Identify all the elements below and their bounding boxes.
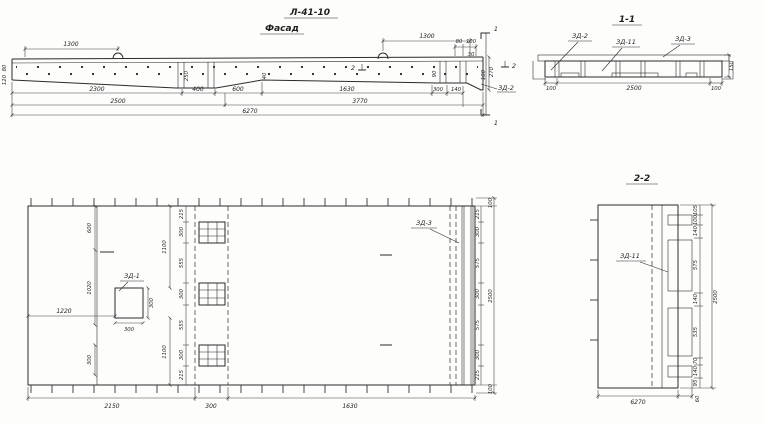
blueprint-page: Л-41-10 Фасад 1 1 2 2 ЗД-2 1300: [0, 0, 765, 424]
part-label-zd11: ЗД-11: [616, 38, 636, 46]
dim-label: 3770: [352, 98, 367, 105]
dim-label: 2300: [89, 86, 104, 93]
dim-label: 120: [2, 74, 8, 85]
part-label-zd3: ЗД-3: [416, 219, 432, 227]
dim-label: 90: [432, 70, 438, 77]
dim-label: 2500: [110, 98, 125, 105]
dim-label: 300: [149, 297, 155, 308]
dim-label: 140: [693, 225, 699, 236]
section-mark-1-top: 1: [494, 25, 498, 33]
mesh-opening: [199, 345, 225, 366]
dim-label: 80: [456, 39, 463, 45]
dim-label: 100: [481, 69, 487, 80]
dim-label: 2150: [104, 403, 119, 410]
rebar-dots-band: [16, 64, 478, 77]
dim-label: 100: [693, 214, 699, 225]
part-label-zd1: ЗД-1: [124, 272, 140, 280]
dim-label: 300: [475, 226, 481, 237]
section-mark-2-mid: 2: [351, 64, 355, 72]
dim-label: 1630: [339, 86, 354, 93]
section-mark-2-right: 2: [512, 62, 516, 70]
part-label-zd2: ЗД-2: [572, 32, 588, 40]
dim-label: 1220: [56, 308, 71, 315]
zd1-opening: [115, 288, 143, 318]
dim-label: 140: [693, 365, 699, 376]
edge-notch: [668, 366, 692, 377]
dim-label: 575: [475, 257, 481, 268]
dim-label: 300: [87, 354, 93, 365]
section-2-2-title: 2-2: [634, 174, 650, 184]
edge-notch: [668, 308, 692, 356]
dim-label: 250: [184, 70, 190, 81]
dim-label: 100: [488, 383, 494, 394]
edge-notch: [668, 215, 692, 225]
dim-label: 215: [475, 369, 481, 380]
dim-label: 555: [179, 257, 185, 268]
dim-label: 555: [179, 319, 185, 330]
dim-label: 600: [232, 86, 244, 93]
dim-label: 150: [729, 60, 735, 71]
dim-label: 2500: [626, 85, 641, 92]
edge-ticks-left: [590, 215, 598, 378]
section-mark-1-bottom: 1: [494, 119, 498, 127]
edge-ticks-top: [28, 198, 475, 206]
section-1-1-title: 1-1: [619, 15, 635, 25]
dim-label: 300: [433, 87, 444, 93]
dim-label: 6270: [242, 108, 257, 115]
lifting-hook-right: [378, 53, 388, 59]
part-label-zd11: ЗД-11: [620, 252, 640, 260]
elevation-subtitle: Фасад: [265, 24, 299, 34]
edge-ticks-bottom: [28, 385, 475, 393]
dim-label: 100: [466, 39, 477, 45]
dim-label: 300: [179, 226, 185, 237]
drawing-title: Л-41-10: [289, 8, 330, 18]
dim-label: 215: [179, 369, 185, 380]
plan-view: ЗД-1 300 300 1220 600 1020 300 1100 1100…: [28, 197, 497, 410]
dim-label: 575: [693, 259, 699, 270]
dim-label: 80: [2, 64, 8, 71]
dim-label: 2500: [713, 290, 719, 304]
dim-label: 70: [693, 357, 699, 364]
dim-label: 2500: [488, 289, 494, 303]
dim-label: 1300: [63, 41, 78, 48]
technical-drawing: Л-41-10 Фасад 1 1 2 2 ЗД-2 1300: [0, 0, 765, 424]
dim-label: 100: [546, 86, 557, 92]
edge-notch: [668, 240, 692, 291]
edge-element-band: [464, 206, 471, 385]
dim-label: 1100: [162, 345, 168, 359]
dim-label: 1630: [342, 403, 357, 410]
dim-label: 100: [711, 86, 722, 92]
dim-label: 300: [179, 288, 185, 299]
slab-band: [538, 55, 729, 61]
dim-label: 1100: [162, 240, 168, 254]
dim-label: 100: [488, 197, 494, 208]
dim-label: 300: [179, 349, 185, 360]
dim-label: 270: [489, 66, 495, 77]
dim-label: 105: [693, 204, 699, 215]
dim-label: 95: [693, 379, 699, 386]
section-1-1-view: 1-1 ЗД-2 ЗД-11 ЗД-3 100 2500 100 150: [533, 15, 735, 92]
dim-label: 6270: [630, 399, 645, 406]
dim-label: 40: [262, 72, 268, 79]
dim-label: 1300: [419, 33, 434, 40]
section-2-2-view: 2-2 ЗД-11 105 100 140 575 140 535 70 140…: [590, 174, 719, 406]
dim-label: 30: [468, 52, 475, 58]
mesh-opening: [199, 222, 225, 243]
part-label-zd2: ЗД-2: [498, 84, 514, 92]
dim-label: 140: [693, 293, 699, 304]
dim-label: 300: [205, 403, 217, 410]
dim-label: 400: [192, 86, 204, 93]
dim-label: 535: [693, 326, 699, 337]
dim-label: 140: [451, 87, 462, 93]
dim-label: 300: [475, 349, 481, 360]
part-label-zd3: ЗД-3: [675, 35, 691, 43]
dim-label: 600: [87, 222, 93, 233]
dim-label: 300: [475, 288, 481, 299]
dim-label: 215: [475, 208, 481, 219]
dim-label: 215: [179, 208, 185, 219]
dim-label: 1020: [87, 281, 93, 295]
dim-label: 300: [124, 327, 135, 333]
dim-label: 575: [475, 319, 481, 330]
dim-label: 60: [695, 395, 701, 402]
elevation-view: Л-41-10 Фасад 1 1 2 2 ЗД-2 1300: [2, 8, 516, 127]
hatched-body: [598, 205, 678, 388]
mesh-opening: [199, 283, 225, 305]
